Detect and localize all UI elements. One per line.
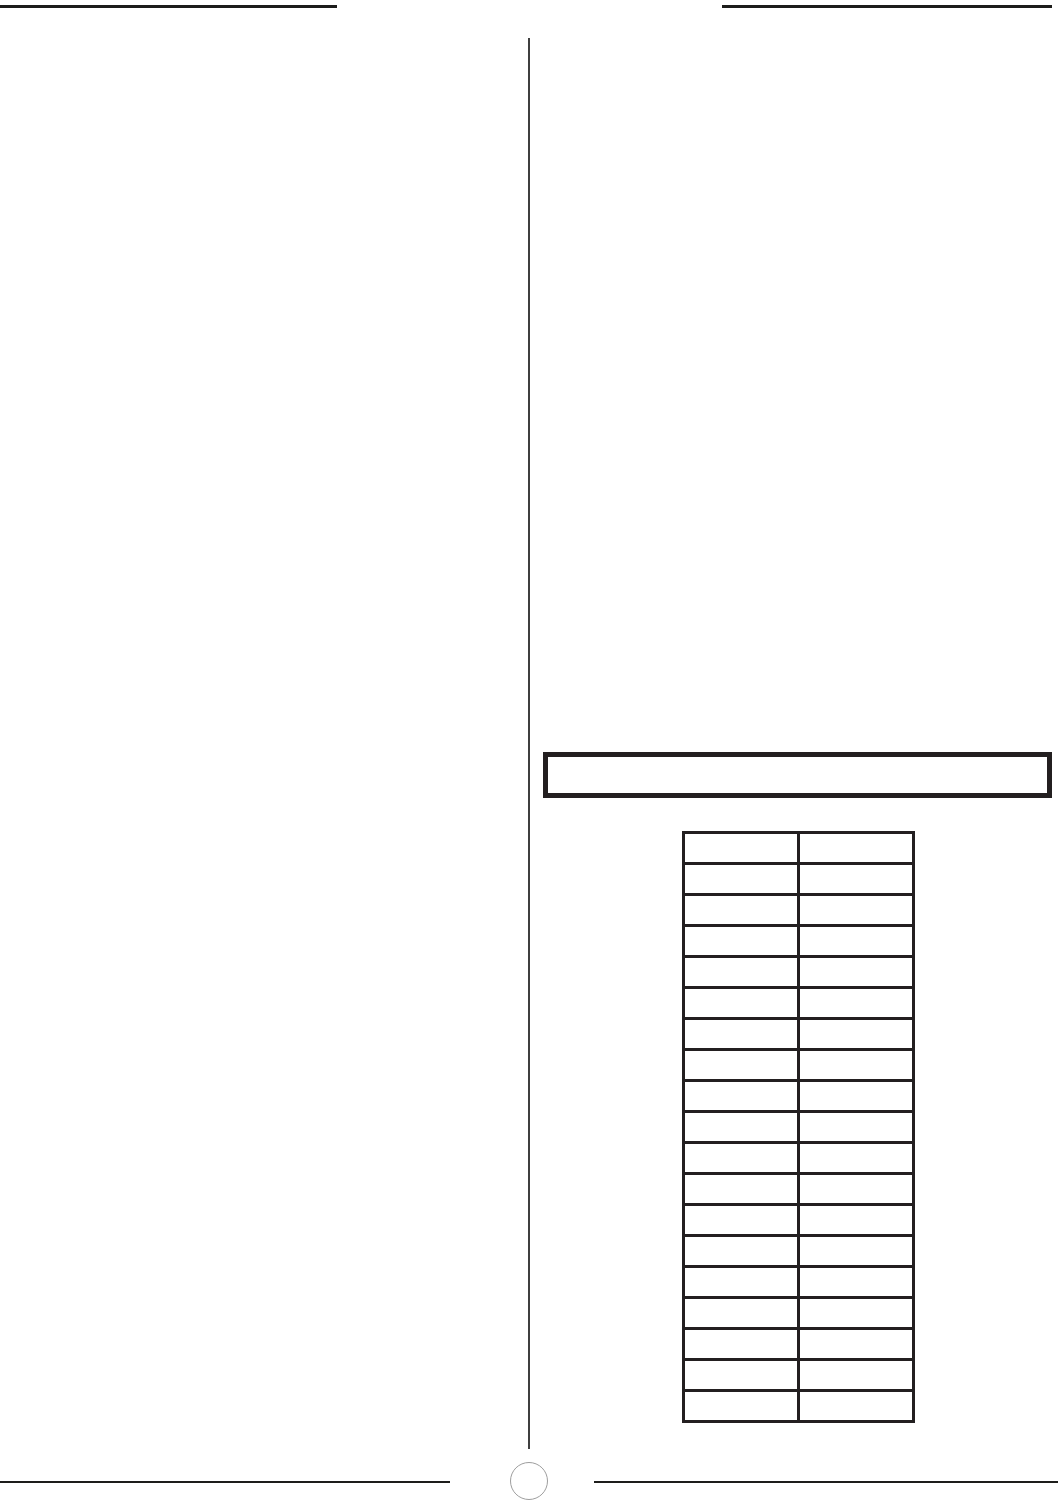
header-rule-left [0,5,337,8]
table-cell [684,1112,799,1143]
table-cell [799,1391,914,1422]
footer-rule-left [0,1481,450,1483]
table-cell [684,1329,799,1360]
table-cell [799,988,914,1019]
table-row [684,1019,914,1050]
table-row [684,864,914,895]
table-cell [684,833,799,864]
table-cell [799,1298,914,1329]
table-cell [799,1081,914,1112]
table-cell [684,957,799,988]
table-cell [799,1360,914,1391]
table-cell [799,1112,914,1143]
callout-box [543,752,1052,798]
table-row [684,1174,914,1205]
table-cell [684,988,799,1019]
table-row [684,1205,914,1236]
notes-table-body [684,833,914,1422]
column-divider [528,38,530,1449]
table-row [684,957,914,988]
table-cell [799,1329,914,1360]
table-cell [684,1205,799,1236]
table-cell [684,1298,799,1329]
table-cell [799,1050,914,1081]
table-cell [684,1081,799,1112]
table-cell [799,1174,914,1205]
table-row [684,1298,914,1329]
header-rule-right [722,5,1052,8]
notes-table [682,831,915,1423]
footer-rule-right [594,1481,1058,1483]
table-row [684,1143,914,1174]
table-cell [799,926,914,957]
table-row [684,926,914,957]
table-cell [799,1267,914,1298]
table-cell [799,864,914,895]
table-row [684,988,914,1019]
table-cell [799,1019,914,1050]
table-cell [684,864,799,895]
table-cell [799,957,914,988]
table-cell [799,1236,914,1267]
table-cell [799,895,914,926]
table-cell [684,926,799,957]
table-row [684,1112,914,1143]
table-row [684,1081,914,1112]
table-row [684,1236,914,1267]
table-row [684,895,914,926]
table-row [684,1050,914,1081]
table-row [684,833,914,864]
table-row [684,1360,914,1391]
table-cell [799,1205,914,1236]
table-row [684,1267,914,1298]
table-cell [799,833,914,864]
table-cell [684,1050,799,1081]
page-number-circle [510,1462,548,1500]
table-cell [684,1236,799,1267]
table-cell [684,1267,799,1298]
table-cell [684,1360,799,1391]
table-cell [684,1174,799,1205]
table-cell [684,895,799,926]
table-row [684,1329,914,1360]
table-cell [684,1019,799,1050]
table-cell [684,1143,799,1174]
table-cell [799,1143,914,1174]
table-row [684,1391,914,1422]
document-page [0,0,1058,1502]
table-cell [684,1391,799,1422]
